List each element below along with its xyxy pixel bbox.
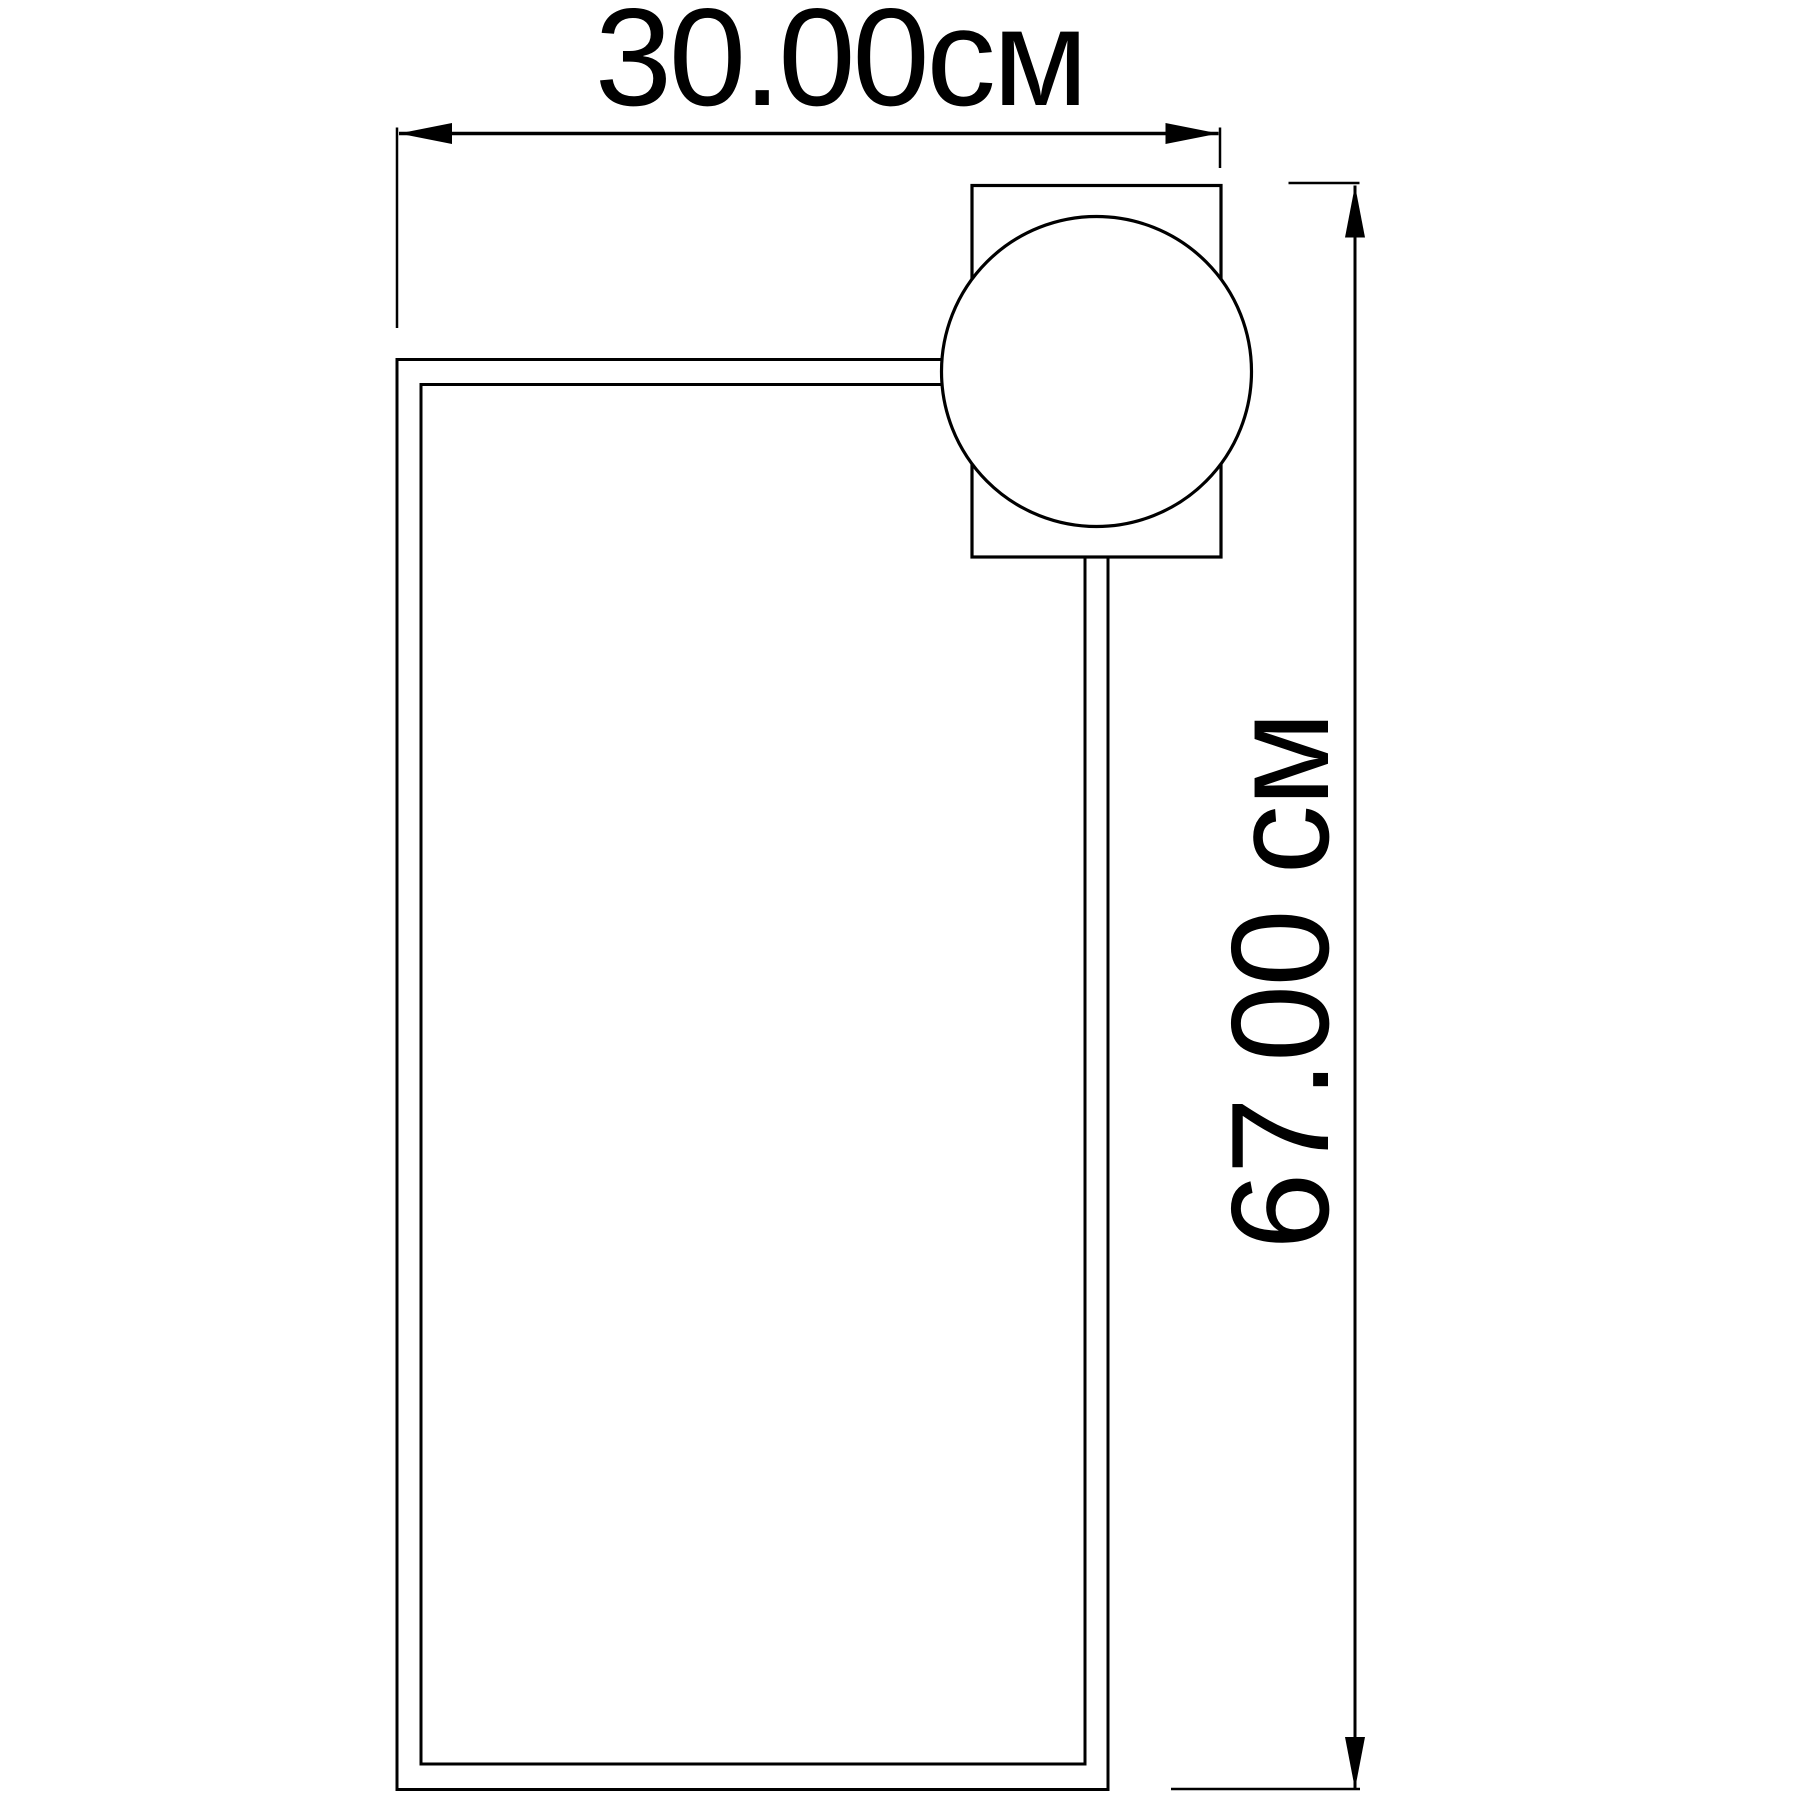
svg-text:67.00 см: 67.00 см — [1203, 711, 1358, 1250]
svg-text:30.00см: 30.00см — [595, 0, 1089, 135]
